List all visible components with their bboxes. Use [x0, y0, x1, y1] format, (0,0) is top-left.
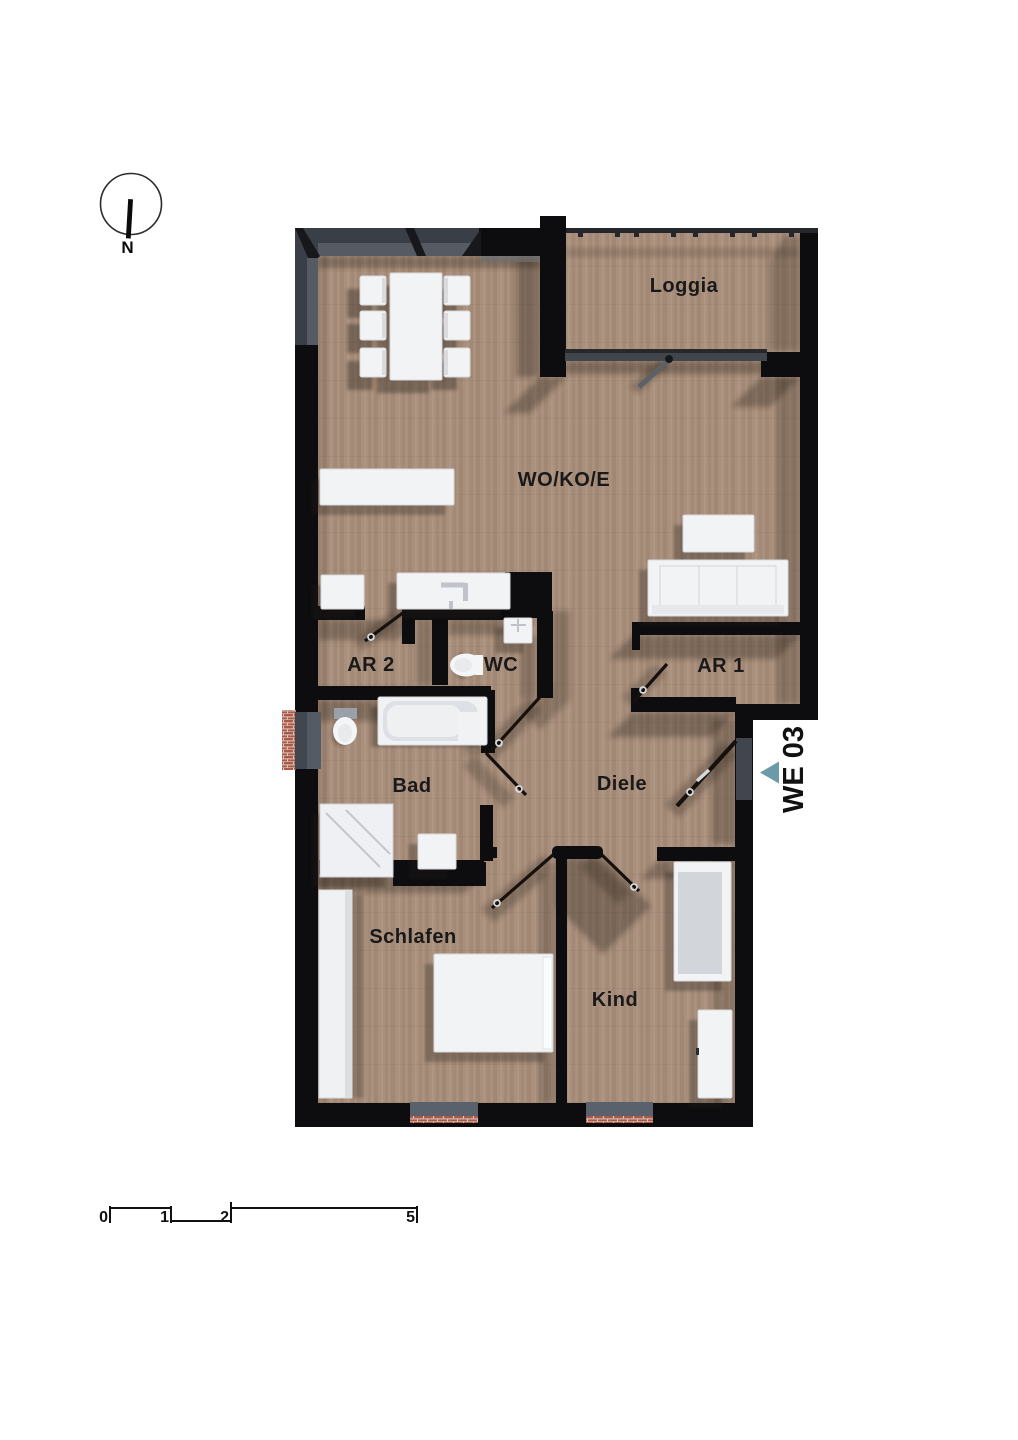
svg-text:WC: WC	[484, 654, 518, 676]
svg-text:Schlafen: Schlafen	[369, 926, 456, 948]
svg-text:WE 03: WE 03	[778, 726, 810, 813]
svg-text:0: 0	[99, 1209, 108, 1226]
svg-text:5: 5	[406, 1209, 415, 1226]
svg-text:Kind: Kind	[592, 989, 638, 1011]
svg-text:Diele: Diele	[597, 773, 647, 795]
svg-text:Bad: Bad	[392, 775, 431, 797]
svg-text:Loggia: Loggia	[650, 275, 719, 297]
svg-text:WO/KO/E: WO/KO/E	[518, 469, 610, 491]
svg-text:AR 2: AR 2	[347, 654, 395, 676]
svg-text:2: 2	[220, 1209, 229, 1226]
svg-text:AR 1: AR 1	[697, 655, 745, 677]
svg-text:N: N	[121, 238, 133, 257]
svg-text:1: 1	[160, 1209, 169, 1226]
